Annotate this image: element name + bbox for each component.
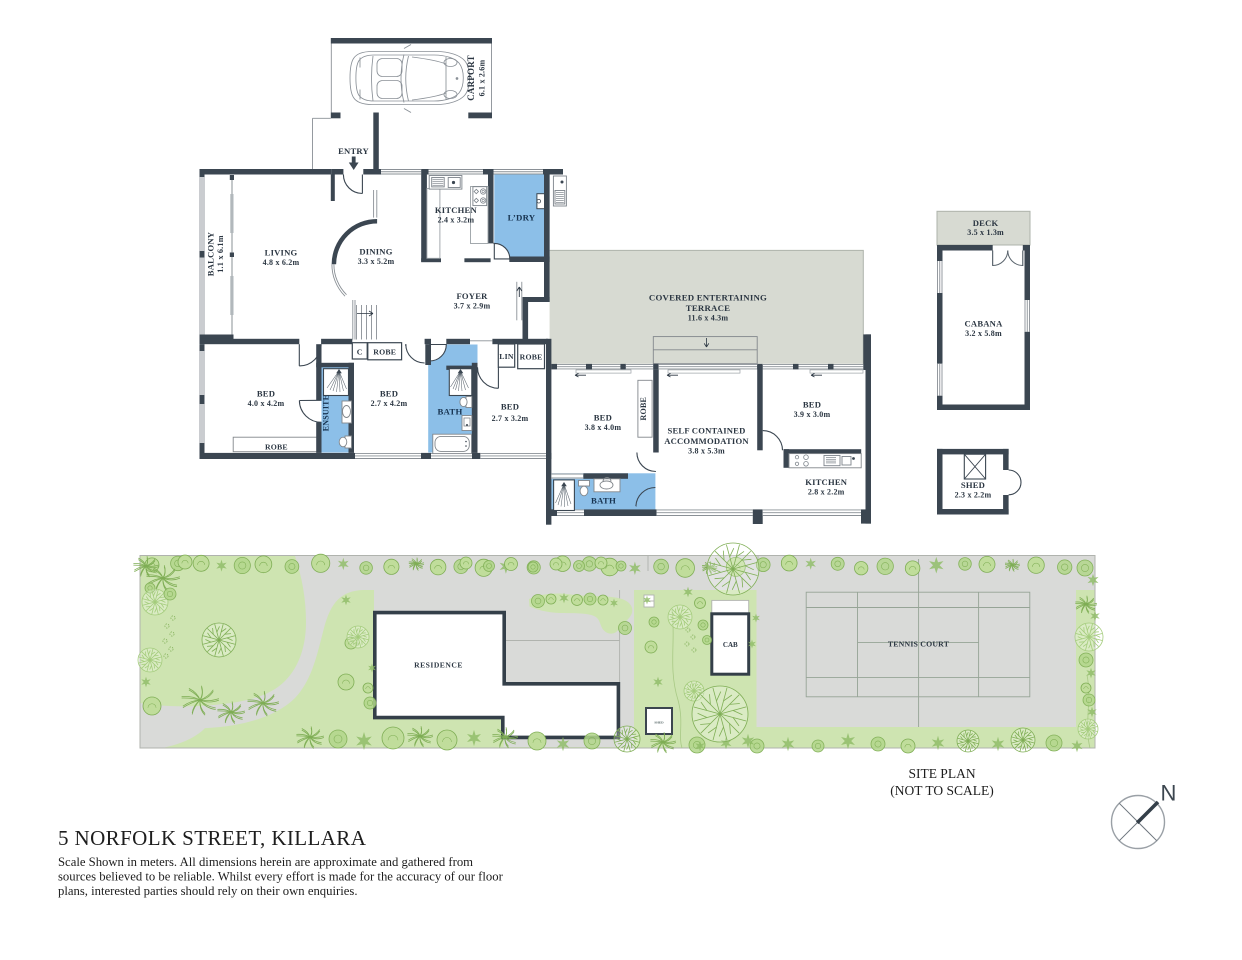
svg-text:ACCOMMODATION: ACCOMMODATION (664, 436, 749, 446)
svg-text:BALCONY: BALCONY (206, 231, 216, 276)
svg-text:3.5 x 1.3m: 3.5 x 1.3m (967, 228, 1004, 237)
svg-text:SELF CONTAINED: SELF CONTAINED (667, 426, 745, 436)
svg-text:TERRACE: TERRACE (686, 303, 730, 313)
svg-text:ROBE: ROBE (265, 442, 288, 451)
svg-text:Scale Shown in meters. All dim: Scale Shown in meters. All dimensions he… (58, 855, 473, 869)
svg-text:RESIDENCE: RESIDENCE (414, 661, 463, 670)
svg-text:5 NORFOLK STREET, KILLARA: 5 NORFOLK STREET, KILLARA (58, 826, 367, 850)
svg-text:BED: BED (803, 400, 821, 410)
svg-text:3.3 x 5.2m: 3.3 x 5.2m (358, 257, 395, 266)
svg-text:LIVING: LIVING (265, 248, 298, 258)
svg-text:(NOT TO SCALE): (NOT TO SCALE) (890, 783, 994, 798)
svg-text:KITCHEN: KITCHEN (805, 477, 848, 487)
svg-text:ROBE: ROBE (639, 397, 648, 420)
svg-text:3.9 x 3.0m: 3.9 x 3.0m (794, 410, 831, 419)
svg-text:KITCHEN: KITCHEN (435, 205, 478, 215)
svg-text:BED: BED (380, 389, 398, 399)
svg-text:BED: BED (257, 389, 275, 399)
svg-text:ENSUITE: ENSUITE (322, 395, 331, 432)
svg-text:plans, interested parties shou: plans, interested parties should rely on… (58, 884, 358, 898)
svg-text:CABANA: CABANA (965, 319, 1004, 329)
svg-text:SHED: SHED (654, 721, 664, 725)
svg-text:BATH: BATH (437, 407, 462, 417)
svg-text:2.7 x 3.2m: 2.7 x 3.2m (492, 414, 529, 423)
svg-text:BED: BED (594, 413, 612, 423)
svg-text:1.1 x 6.1m: 1.1 x 6.1m (216, 235, 225, 272)
svg-text:2.7 x 4.2m: 2.7 x 4.2m (371, 399, 408, 408)
svg-text:4.8 x 6.2m: 4.8 x 6.2m (263, 258, 300, 267)
svg-text:4.0 x 4.2m: 4.0 x 4.2m (248, 399, 285, 408)
svg-text:2.4 x 3.2m: 2.4 x 3.2m (438, 216, 475, 225)
svg-text:TENNIS COURT: TENNIS COURT (888, 640, 950, 649)
svg-text:CAB: CAB (723, 641, 738, 649)
svg-text:ROBE: ROBE (520, 353, 543, 362)
svg-text:N: N (1161, 781, 1177, 806)
svg-text:SHED: SHED (961, 480, 985, 490)
svg-text:2.8 x 2.2m: 2.8 x 2.2m (808, 488, 845, 497)
svg-text:DECK: DECK (973, 218, 999, 228)
svg-text:3.2 x 5.8m: 3.2 x 5.8m (965, 329, 1002, 338)
svg-text:3.8 x 4.0m: 3.8 x 4.0m (585, 423, 622, 432)
svg-text:C: C (357, 348, 363, 357)
svg-text:LIN: LIN (499, 352, 514, 361)
svg-text:ROBE: ROBE (373, 348, 396, 357)
svg-text:3.8 x 5.3m: 3.8 x 5.3m (688, 447, 725, 456)
svg-text:CARPORT: CARPORT (466, 55, 476, 101)
svg-text:6.1 x 2.6m: 6.1 x 2.6m (478, 60, 487, 97)
svg-text:3.7 x 2.9m: 3.7 x 2.9m (454, 302, 491, 311)
svg-text:sources believed to be reliabl: sources believed to be reliable. Whilst … (58, 870, 504, 884)
svg-text:DINING: DINING (359, 247, 392, 257)
svg-text:COVERED ENTERTAINING: COVERED ENTERTAINING (649, 293, 767, 303)
svg-text:2.3 x 2.2m: 2.3 x 2.2m (955, 491, 992, 500)
svg-text:11.6 x 4.3m: 11.6 x 4.3m (688, 314, 729, 323)
svg-text:BED: BED (501, 402, 519, 412)
svg-text:BATH: BATH (591, 496, 616, 506)
svg-text:FOYER: FOYER (456, 291, 488, 301)
svg-text:SITE PLAN: SITE PLAN (908, 766, 975, 781)
svg-text:L’DRY: L’DRY (508, 213, 536, 223)
svg-text:ENTRY: ENTRY (338, 146, 369, 156)
